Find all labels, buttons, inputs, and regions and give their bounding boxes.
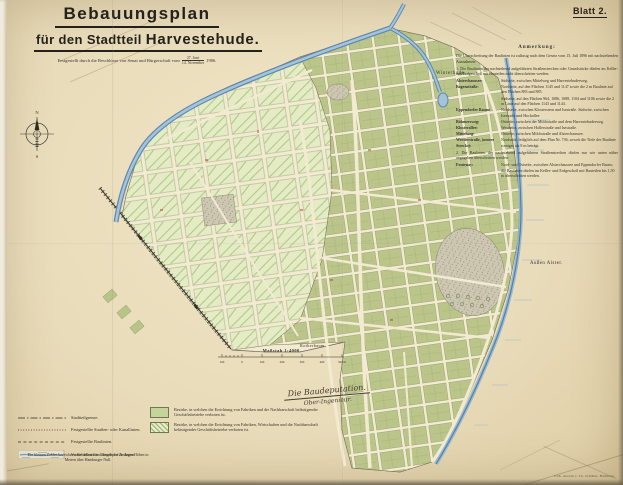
subtitle-prefix: für den Stadtteil <box>36 32 146 47</box>
street-desc: Nordseite, zwischen Klosterstern und Ise… <box>501 107 618 118</box>
paper-edge-right <box>618 0 623 485</box>
street-name: Fontenay: <box>456 162 498 178</box>
legend-row: Festgestellte Straßen- oder Kanallinien. <box>18 425 158 434</box>
street-desc: Nordseite, auf den Flächen 1145 und 1147… <box>501 84 618 95</box>
street-name: Werderstraße, (untere Strecke): <box>456 137 498 148</box>
legend-label: Festgestellte Baulinien. <box>71 439 112 444</box>
street-desc: Südseite, zwischen Mittelweg und Harvest… <box>501 78 618 83</box>
anmerkung-heading: Anmerkung: <box>456 45 618 52</box>
street-name: Mittelweg: <box>456 131 498 136</box>
compass-s-label: S <box>36 154 39 159</box>
street-desc: Ostseite, zwischen Milchstraße und Alste… <box>501 131 618 136</box>
approval-year: 1906. <box>206 58 216 63</box>
anmerkung-street-row: Klosterallee:Westseite, zwischen Hallers… <box>456 125 618 130</box>
approval-date-bottom: 14. November <box>182 61 204 65</box>
anmerkung-street-row: Südseite, auf den Flächen 964, 1086, 108… <box>456 96 618 107</box>
scale-tick-2: 100 <box>260 360 265 364</box>
page-title: Bebauungsplan <box>55 4 218 28</box>
street-desc: Westseite, zwischen Hallerstraße und Ise… <box>501 125 618 130</box>
scale-tick-3: 200 <box>280 360 285 364</box>
page-subtitle: für den Stadtteil Harvestehude. <box>34 31 262 52</box>
anmerkung-street-row: Werderstraße, (untere Strecke):Nordseite… <box>456 137 618 148</box>
canal-line-sample <box>18 425 66 434</box>
anmerkung-street-row: Alsterchaussee:Südseite, zwischen Mittel… <box>456 78 618 83</box>
legend-label: Festgestellte Straßen- oder Kanallinien. <box>71 427 141 432</box>
legend-label: Stadtteilgrenze. <box>71 415 98 420</box>
paper-edge-left <box>0 0 7 485</box>
legend-label: Bezirke, in welchen die Errichtung von F… <box>174 422 336 433</box>
title-block: Bebauungsplan für den Stadtteil Harveste… <box>34 4 240 66</box>
scale-tick-4: 300 <box>300 360 305 364</box>
legend-label: Bezirke, in welchen die Errichtung von F… <box>174 407 336 418</box>
scale-tick-5: 400 <box>320 360 325 364</box>
anmerkung-street-row: Fontenay:Nord- und Ostseite, zwischen Al… <box>456 162 618 178</box>
legend-row: Bezirke, in welchen die Errichtung von F… <box>150 407 336 418</box>
street-name <box>456 96 498 107</box>
legend-row: Festgestellte Baulinien. <box>18 437 158 446</box>
anmerkung-street-row: Eppendorfer Baum:Nordseite, zwischen Klo… <box>456 107 618 118</box>
anmerkung-street-row: Bogenstraße:Nordseite, auf den Flächen 1… <box>456 84 618 95</box>
legend-zones: Bezirke, in welchen die Errichtung von F… <box>150 407 336 437</box>
anmerkung-block: Anmerkung: Die Überschreitung der Baulin… <box>456 45 618 179</box>
label-aussen-alster: Außen Alster. <box>530 261 563 266</box>
scale-tick-1: 0 <box>241 360 243 364</box>
street-desc: Nord- und Ostseite, zwischen Alsterchaus… <box>501 162 618 178</box>
compass-n-label: N <box>35 110 39 115</box>
approval-date-fraction: 27. Juni 14. November <box>182 56 204 66</box>
label-rotherbaum: Rotherbaum. <box>300 343 326 348</box>
anmerkung-item1: 1. Die Baulinien der nachstehend aufgefü… <box>456 66 618 77</box>
street-desc: Südseite, auf den Flächen 964, 1086, 108… <box>501 96 618 107</box>
building-line-sample <box>18 437 66 446</box>
legend-row: Stadtteilgrenze. <box>18 413 158 422</box>
anmerkung-street-row: Mittelweg:Ostseite, zwischen Milchstraße… <box>456 131 618 136</box>
outlying-blocks <box>103 289 144 334</box>
subtitle-district: Harvestehude. <box>146 31 260 48</box>
anmerkung-street-row: Böhmersweg:Ostseite, zwischen der Milchs… <box>456 119 618 124</box>
anmerkung-intro: Die Überschreitung der Baulinien ist zul… <box>456 53 618 64</box>
scale-tick-0: 100 <box>220 360 225 364</box>
street-desc: Ostseite, zwischen der Milchstraße und d… <box>501 119 618 124</box>
boundary-line-sample <box>18 413 66 422</box>
approval-text: Festgestellt durch die Beschlüsse von Se… <box>57 58 179 63</box>
sheet-number: Blatt 2. <box>573 6 607 18</box>
approval-line: Festgestellt durch die Beschlüsse von Se… <box>34 56 240 66</box>
fold-crease-horizontal <box>0 243 623 245</box>
scale-label: Maßstab 1:4000. <box>263 348 302 353</box>
street-name: Bogenstraße: <box>456 84 498 95</box>
legend-row: Bezirke, in welchen die Errichtung von F… <box>150 422 336 433</box>
anmerkung-item2: 2. Die Baulinien der nachstehend aufgefü… <box>456 150 618 161</box>
map-sheet: N S Maßstab 1:4000. 100 0 100 200 300 40… <box>0 0 623 485</box>
street-name: Böhmersweg: <box>456 119 498 124</box>
zone-hatched-green-swatch <box>150 422 169 433</box>
street-name: Klosterallee: <box>456 125 498 130</box>
street-desc: Nordseite, lediglich auf dem Plan Nr. 73… <box>501 137 618 148</box>
street-name: Alsterchaussee: <box>456 78 498 83</box>
street-name: Eppendorfer Baum: <box>456 107 498 118</box>
legend-note: Die kleinen Zahlen bezeichnen die defini… <box>26 453 150 463</box>
zone-solid-green-swatch <box>150 407 169 418</box>
paper-edge-bottom <box>0 479 623 485</box>
compass-rose: N S <box>20 110 54 159</box>
